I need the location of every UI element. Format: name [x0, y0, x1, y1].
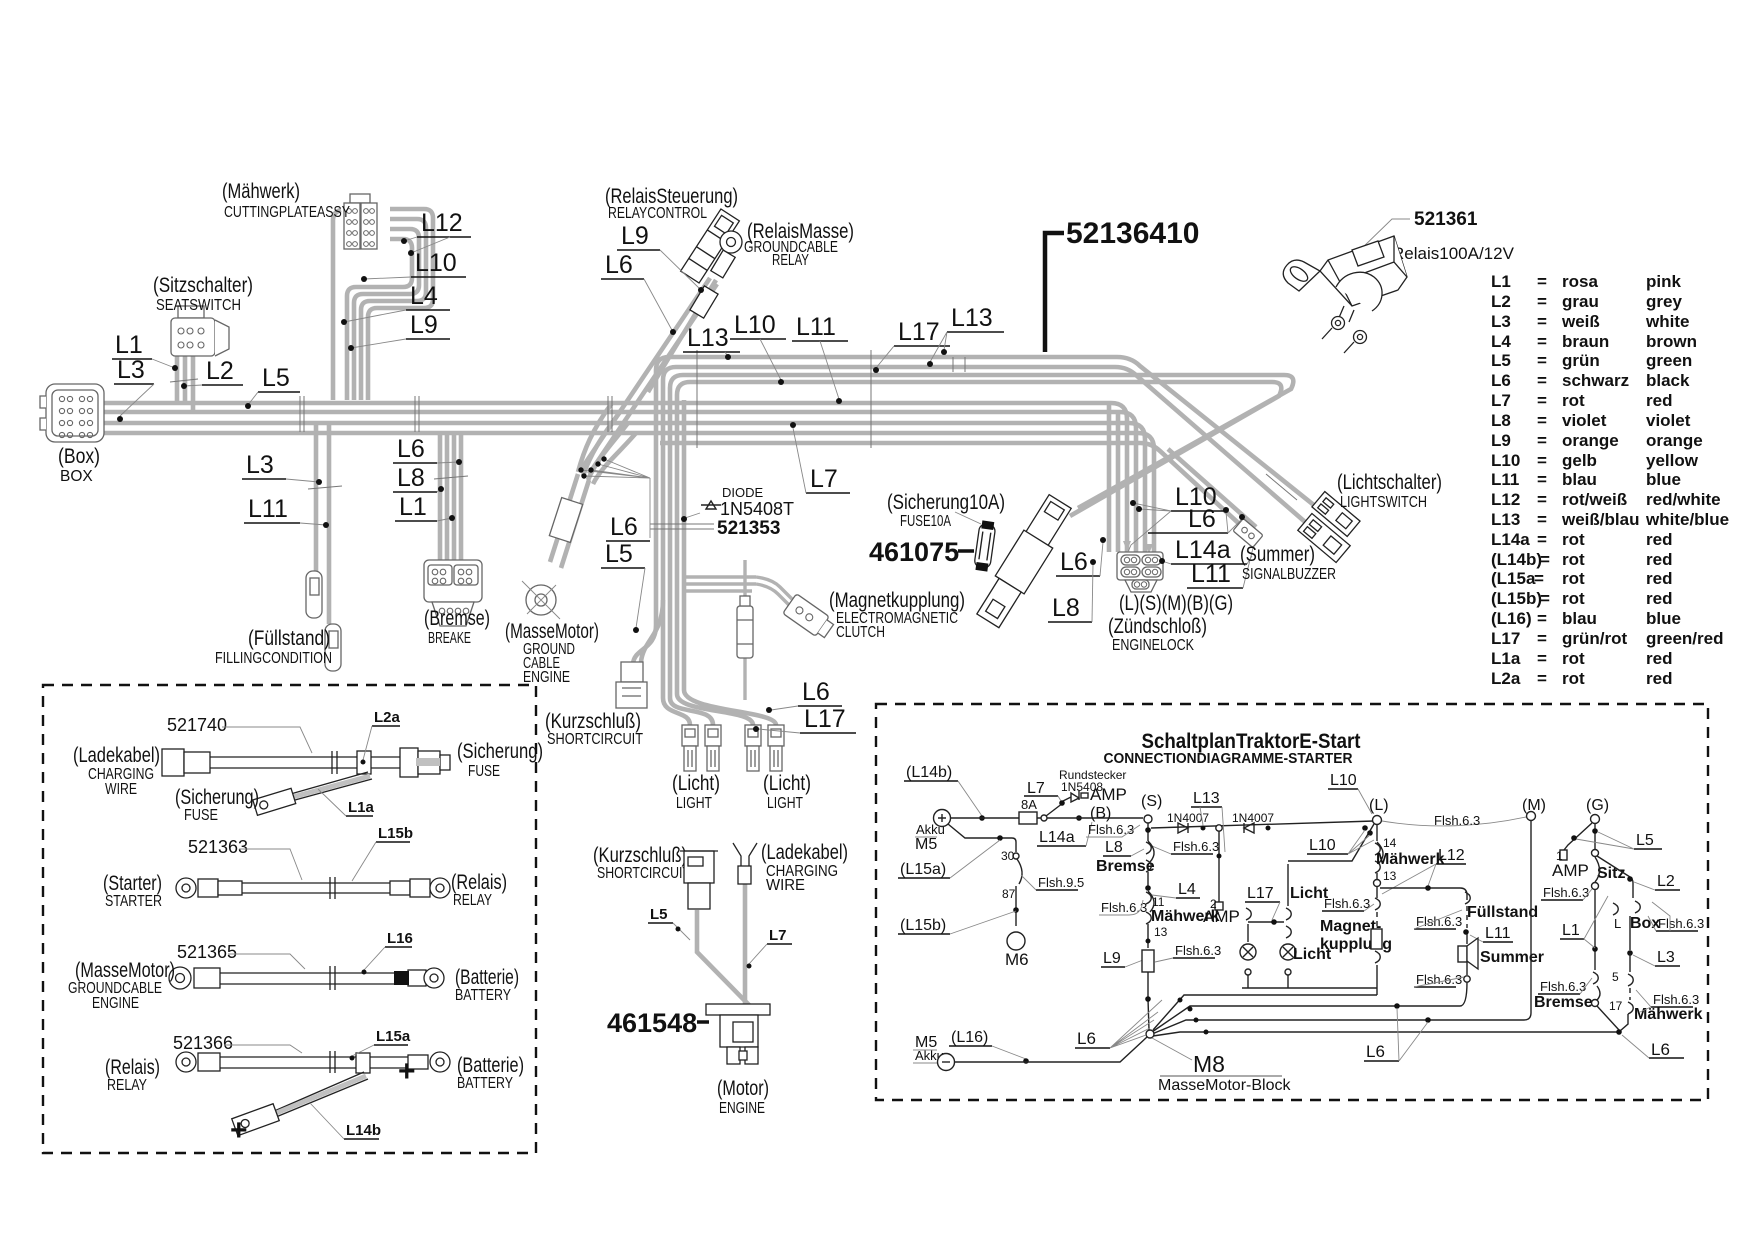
svg-text:red: red [1646, 550, 1672, 569]
svg-text:L17: L17 [1491, 629, 1520, 648]
svg-text:L11: L11 [1485, 925, 1511, 942]
svg-text:LIGHT: LIGHT [767, 795, 803, 812]
svg-text:rot: rot [1562, 550, 1585, 569]
svg-text:30: 30 [1001, 849, 1015, 863]
svg-text:L17: L17 [898, 318, 940, 346]
svg-text:=: = [1537, 510, 1547, 529]
svg-text:(MasseMotor): (MasseMotor) [505, 620, 599, 643]
svg-text:L1a: L1a [1491, 649, 1521, 668]
svg-text:L5: L5 [262, 364, 290, 392]
svg-text:M8: M8 [1193, 1051, 1225, 1077]
svg-text:(S): (S) [1141, 793, 1162, 810]
svg-text:L10: L10 [734, 311, 776, 339]
svg-text:grey: grey [1646, 292, 1682, 311]
svg-text:green: green [1646, 351, 1692, 370]
svg-text:Mähwerk: Mähwerk [1634, 1006, 1703, 1023]
svg-text:(MasseMotor): (MasseMotor) [75, 959, 175, 982]
svg-text:461548: 461548 [607, 1008, 697, 1038]
svg-text:black: black [1646, 371, 1690, 390]
svg-text:=: = [1537, 391, 1547, 410]
svg-text:(L15b): (L15b) [1491, 589, 1542, 608]
svg-text:=: = [1537, 411, 1547, 430]
svg-text:L10: L10 [415, 249, 457, 277]
svg-text:L1: L1 [1491, 272, 1511, 291]
svg-text:(Batterie): (Batterie) [457, 1054, 524, 1077]
svg-text:rot/weiß: rot/weiß [1562, 490, 1627, 509]
svg-text:weiß: weiß [1561, 312, 1600, 331]
svg-text:Füllstand: Füllstand [1467, 904, 1538, 921]
svg-text:(Kurzschluß): (Kurzschluß) [593, 844, 687, 867]
svg-text:(Magnetkupplung): (Magnetkupplung) [829, 589, 965, 612]
svg-text:SHORTCIRCUIT: SHORTCIRCUIT [597, 865, 690, 882]
svg-text:WIRE: WIRE [105, 781, 137, 798]
svg-text:L17: L17 [804, 705, 846, 733]
svg-text:white/blue: white/blue [1645, 510, 1729, 529]
svg-text:=: = [1537, 649, 1547, 668]
svg-text:L10: L10 [1491, 451, 1520, 470]
svg-text:(Mähwerk): (Mähwerk) [222, 180, 300, 203]
svg-text:L9: L9 [410, 311, 438, 339]
svg-text:=: = [1537, 431, 1547, 450]
svg-text:L2: L2 [206, 357, 234, 385]
svg-text:=: = [1540, 589, 1550, 608]
svg-text:RELAY: RELAY [107, 1077, 147, 1094]
svg-text:(Starter): (Starter) [103, 872, 162, 895]
svg-text:L9: L9 [621, 222, 649, 250]
svg-text:87: 87 [1002, 887, 1016, 901]
svg-text:L1: L1 [399, 493, 427, 521]
svg-text:(L15a: (L15a [1491, 569, 1536, 588]
svg-text:Flsh.6.3: Flsh.6.3 [1543, 885, 1589, 900]
svg-text:SHORTCIRCUIT: SHORTCIRCUIT [547, 731, 643, 748]
svg-text:Sitz: Sitz [1597, 865, 1625, 882]
svg-text:Flsh.6.3: Flsh.6.3 [1416, 972, 1462, 987]
svg-text:L14a: L14a [1039, 829, 1075, 846]
svg-text:L10: L10 [1309, 837, 1336, 854]
svg-text:(Summer): (Summer) [1240, 543, 1315, 566]
svg-text:(Kurzschluß): (Kurzschluß) [545, 710, 641, 733]
svg-text:=: = [1537, 629, 1547, 648]
svg-text:L3: L3 [117, 356, 145, 384]
svg-text:red: red [1646, 569, 1672, 588]
svg-text:461075: 461075 [869, 537, 959, 567]
svg-text:=: = [1537, 292, 1547, 311]
svg-text:(Motor): (Motor) [717, 1077, 769, 1100]
svg-text:RELAY: RELAY [453, 892, 492, 909]
svg-text:5: 5 [1612, 970, 1619, 984]
svg-text:L12: L12 [1491, 490, 1520, 509]
svg-text:WIRE: WIRE [766, 877, 805, 894]
svg-text:(L15a): (L15a) [900, 861, 946, 878]
svg-text:RELAY: RELAY [772, 252, 809, 269]
svg-text:Flsh.6.3: Flsh.6.3 [1324, 896, 1370, 911]
svg-text:Flsh.9.5: Flsh.9.5 [1038, 875, 1084, 890]
svg-text:(L14b): (L14b) [1491, 550, 1542, 569]
svg-text:grau: grau [1562, 292, 1599, 311]
svg-text:(L16): (L16) [951, 1029, 988, 1046]
svg-text:L5: L5 [650, 906, 668, 923]
svg-text:(Relais): (Relais) [105, 1056, 160, 1079]
svg-text:(L): (L) [1369, 797, 1389, 814]
svg-text:AMP: AMP [1552, 861, 1589, 880]
svg-text:L13: L13 [1491, 510, 1520, 529]
svg-text:521363: 521363 [188, 837, 248, 857]
svg-text:(L14b): (L14b) [906, 764, 952, 781]
svg-text:AMP: AMP [1090, 785, 1127, 804]
svg-text:L: L [1614, 916, 1621, 931]
svg-text:M5: M5 [915, 836, 937, 853]
svg-text:SchaltplanTraktorE-Start: SchaltplanTraktorE-Start [1142, 730, 1361, 753]
svg-text:521353: 521353 [717, 518, 780, 539]
svg-text:L6: L6 [605, 251, 633, 279]
svg-text:red: red [1646, 391, 1672, 410]
svg-text:L13: L13 [1193, 790, 1220, 807]
svg-text:521365: 521365 [177, 942, 237, 962]
svg-text:521366: 521366 [173, 1033, 233, 1053]
svg-text:L10: L10 [1330, 772, 1357, 789]
svg-text:=: = [1540, 550, 1550, 569]
svg-text:521740: 521740 [167, 715, 227, 735]
svg-text:L1a: L1a [348, 799, 375, 816]
svg-text:L6: L6 [1651, 1040, 1670, 1059]
svg-text:13: 13 [1154, 925, 1168, 939]
svg-text:L8: L8 [1105, 839, 1123, 856]
svg-text:CLUTCH: CLUTCH [836, 624, 885, 641]
svg-text:red: red [1646, 530, 1672, 549]
svg-text:FUSE10A: FUSE10A [900, 513, 951, 530]
svg-text:L11: L11 [1191, 560, 1231, 588]
svg-text:+: + [230, 1114, 248, 1147]
svg-text:(Licht): (Licht) [672, 772, 720, 795]
svg-text:rot: rot [1562, 569, 1585, 588]
svg-text:L16: L16 [387, 930, 413, 947]
svg-text:(Box): (Box) [58, 445, 100, 468]
svg-text:rot: rot [1562, 589, 1585, 608]
svg-text:L9: L9 [1103, 950, 1121, 967]
svg-text:ENGINELOCK: ENGINELOCK [1112, 637, 1195, 654]
svg-text:(Füllstand): (Füllstand) [248, 627, 330, 650]
svg-text:BREAKE: BREAKE [428, 630, 471, 647]
svg-text:Bremse: Bremse [1534, 994, 1593, 1011]
svg-text:STARTER: STARTER [105, 893, 162, 910]
svg-text:L9: L9 [1491, 431, 1511, 450]
svg-text:rot: rot [1562, 649, 1585, 668]
svg-text:blue: blue [1646, 470, 1681, 489]
svg-text:L12: L12 [421, 209, 463, 237]
svg-text:Relais100A/12V: Relais100A/12V [1392, 244, 1515, 263]
svg-text:(Licht): (Licht) [763, 772, 811, 795]
svg-text:L6: L6 [397, 435, 425, 463]
svg-text:yellow: yellow [1646, 451, 1699, 470]
svg-text:Flsh.6.3: Flsh.6.3 [1653, 992, 1699, 1007]
svg-text:L8: L8 [1491, 411, 1511, 430]
svg-text:=: = [1537, 371, 1547, 390]
svg-text:L6: L6 [1077, 1029, 1096, 1048]
svg-text:RELAYCONTROL: RELAYCONTROL [608, 205, 707, 222]
svg-text:blau: blau [1562, 609, 1597, 628]
svg-text:1N5408T: 1N5408T [720, 499, 794, 519]
svg-text:FUSE: FUSE [468, 763, 500, 780]
svg-text:L12: L12 [1438, 847, 1465, 864]
svg-text:L6: L6 [1491, 371, 1511, 390]
svg-text:L8: L8 [397, 464, 425, 492]
svg-text:SIGNALBUZZER: SIGNALBUZZER [1242, 566, 1336, 583]
svg-text:L7: L7 [769, 927, 787, 944]
svg-text:(M): (M) [1522, 797, 1546, 814]
svg-text:=: = [1537, 272, 1547, 291]
svg-text:=: = [1537, 609, 1547, 628]
svg-text:gelb: gelb [1562, 451, 1597, 470]
svg-text:=: = [1537, 669, 1547, 688]
svg-text:rosa: rosa [1562, 272, 1598, 291]
svg-text:(Ladekabel): (Ladekabel) [73, 744, 160, 767]
svg-text:L3: L3 [1491, 312, 1511, 331]
svg-text:14: 14 [1383, 836, 1397, 850]
svg-text:=: = [1537, 332, 1547, 351]
svg-text:+: + [398, 1055, 416, 1088]
svg-text:rot: rot [1562, 530, 1585, 549]
svg-text:=: = [1537, 470, 1547, 489]
svg-text:DIODE: DIODE [722, 485, 764, 500]
svg-text:orange: orange [1562, 431, 1619, 450]
svg-text:L15a: L15a [376, 1028, 411, 1045]
svg-text:schwarz: schwarz [1562, 371, 1629, 390]
svg-text:Flsh.6.3: Flsh.6.3 [1416, 914, 1462, 929]
svg-text:L4: L4 [1491, 332, 1511, 351]
svg-text:weiß/blau: weiß/blau [1561, 510, 1639, 529]
svg-text:red: red [1646, 589, 1672, 608]
svg-text:(L15b): (L15b) [900, 917, 946, 934]
svg-text:8A: 8A [1021, 797, 1037, 812]
svg-text:L5: L5 [1636, 832, 1654, 849]
svg-text:L7: L7 [1491, 391, 1511, 410]
svg-text:white: white [1645, 312, 1689, 331]
svg-text:(B): (B) [1090, 805, 1111, 822]
svg-text:blau: blau [1562, 470, 1597, 489]
svg-text:red/white: red/white [1646, 490, 1721, 509]
svg-text:(Zündschloß): (Zündschloß) [1108, 615, 1207, 638]
svg-text:violet: violet [1562, 411, 1607, 430]
svg-text:Box: Box [1630, 915, 1660, 932]
svg-text:L11: L11 [796, 313, 836, 341]
svg-text:L2a: L2a [1491, 669, 1521, 688]
svg-text:52136410: 52136410 [1066, 217, 1199, 250]
svg-text:=: = [1537, 351, 1547, 370]
svg-text:FUSE: FUSE [184, 807, 218, 824]
svg-text:L11: L11 [248, 495, 288, 523]
svg-text:violet: violet [1646, 411, 1691, 430]
svg-text:BATTERY: BATTERY [457, 1075, 513, 1092]
svg-text:L2a: L2a [374, 709, 401, 726]
svg-text:(Sitzschalter): (Sitzschalter) [153, 274, 253, 297]
svg-text:(Sicherung): (Sicherung) [175, 786, 259, 809]
svg-text:L14a: L14a [1491, 530, 1530, 549]
svg-text:rot: rot [1562, 391, 1585, 410]
svg-text:L13: L13 [951, 304, 993, 332]
svg-text:(Relais): (Relais) [451, 871, 507, 894]
svg-text:L6: L6 [1366, 1042, 1385, 1061]
svg-text:FILLINGCONDITION: FILLINGCONDITION [215, 650, 332, 667]
svg-text:orange: orange [1646, 431, 1703, 450]
svg-text:ENGINE: ENGINE [92, 995, 139, 1012]
svg-text:Akku: Akku [916, 822, 945, 837]
svg-text:CUTTINGPLATEASSY: CUTTINGPLATEASSY [224, 204, 350, 221]
svg-text:(Bremse): (Bremse) [424, 607, 490, 630]
svg-text:L8: L8 [1052, 594, 1080, 622]
svg-text:(G): (G) [1586, 797, 1609, 814]
svg-text:SEATSWITCH: SEATSWITCH [156, 297, 241, 314]
svg-text:Flsh.6.3: Flsh.6.3 [1088, 822, 1134, 837]
svg-text:521361: 521361 [1414, 209, 1478, 230]
svg-text:(Ladekabel): (Ladekabel) [761, 841, 848, 864]
svg-text:Flsh.6.3: Flsh.6.3 [1175, 943, 1221, 958]
svg-text:L3: L3 [246, 451, 274, 479]
svg-text:AMP: AMP [1203, 907, 1240, 926]
svg-text:Flsh.6.3: Flsh.6.3 [1540, 979, 1586, 994]
svg-text:17: 17 [1609, 999, 1623, 1013]
svg-text:Flsh.6.3: Flsh.6.3 [1101, 900, 1147, 915]
svg-text:brown: brown [1646, 332, 1697, 351]
svg-text:LIGHTSWITCH: LIGHTSWITCH [1340, 494, 1427, 511]
svg-text:L6: L6 [802, 678, 830, 706]
svg-text:M6: M6 [1005, 950, 1029, 969]
svg-text:ENGINE: ENGINE [523, 669, 570, 686]
svg-text:(Sicherung10A): (Sicherung10A) [887, 491, 1005, 514]
svg-text:L11: L11 [1491, 470, 1519, 489]
svg-text:L5: L5 [1491, 351, 1511, 370]
svg-text:(Lichtschalter): (Lichtschalter) [1337, 471, 1442, 494]
svg-text:L4: L4 [1178, 881, 1196, 898]
svg-text:L6: L6 [1188, 505, 1216, 533]
svg-text:L13: L13 [687, 324, 729, 352]
svg-text:(Batterie): (Batterie) [455, 966, 519, 989]
svg-text:blue: blue [1646, 609, 1681, 628]
svg-text:Flsh.6.3: Flsh.6.3 [1434, 813, 1480, 828]
svg-text:ENGINE: ENGINE [719, 1100, 765, 1117]
svg-text:L6: L6 [610, 513, 638, 541]
svg-text:=: = [1537, 490, 1547, 509]
svg-text:green/red: green/red [1646, 629, 1723, 648]
svg-text:L1: L1 [115, 331, 143, 359]
svg-text:(L)(S)(M)(B)(G): (L)(S)(M)(B)(G) [1119, 592, 1233, 615]
svg-text:L15b: L15b [378, 825, 413, 842]
svg-text:BATTERY: BATTERY [455, 987, 511, 1004]
svg-text:BOX: BOX [60, 468, 93, 485]
svg-text:red: red [1646, 669, 1672, 688]
svg-text:grün: grün [1562, 351, 1600, 370]
svg-text:=: = [1537, 530, 1547, 549]
svg-text:Flsh.6.3: Flsh.6.3 [1658, 916, 1704, 931]
svg-text:=: = [1537, 451, 1547, 470]
svg-text:CONNECTIONDIAGRAMME-STARTER: CONNECTIONDIAGRAMME-STARTER [1104, 751, 1354, 767]
svg-text:L17: L17 [1247, 885, 1274, 902]
svg-text:red: red [1646, 649, 1672, 668]
svg-text:L5: L5 [605, 540, 633, 568]
svg-text:L4: L4 [410, 282, 438, 310]
svg-text:(Sicherung): (Sicherung) [457, 740, 543, 763]
svg-text:braun: braun [1562, 332, 1609, 351]
svg-text:L2: L2 [1491, 292, 1511, 311]
svg-text:pink: pink [1646, 272, 1681, 291]
svg-text:L7: L7 [810, 465, 838, 493]
svg-text:grün/rot: grün/rot [1562, 629, 1627, 648]
svg-text:LIGHT: LIGHT [676, 795, 712, 812]
svg-text:L2: L2 [1657, 873, 1675, 890]
svg-text:L3: L3 [1657, 949, 1675, 966]
svg-text:=: = [1534, 569, 1544, 588]
svg-text:1N4007: 1N4007 [1232, 811, 1274, 825]
svg-text:rot: rot [1562, 669, 1585, 688]
svg-text:L1: L1 [1562, 922, 1580, 939]
svg-text:13: 13 [1383, 869, 1397, 883]
svg-text:MasseMotor-Block: MasseMotor-Block [1158, 1077, 1291, 1094]
svg-text:Summer: Summer [1480, 949, 1544, 966]
svg-text:=: = [1537, 312, 1547, 331]
svg-text:Flsh.6.3: Flsh.6.3 [1173, 839, 1219, 854]
svg-text:L14b: L14b [346, 1122, 381, 1139]
svg-text:L7: L7 [1027, 780, 1045, 797]
svg-text:(L16): (L16) [1491, 609, 1532, 628]
svg-text:L6: L6 [1060, 548, 1088, 576]
